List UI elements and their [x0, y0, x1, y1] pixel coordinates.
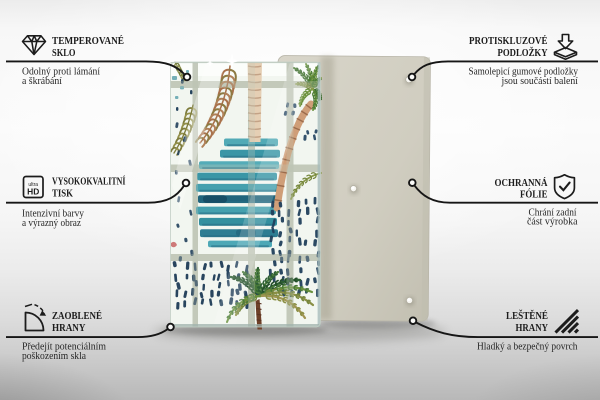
svg-text:OCHRANNÁ: OCHRANNÁ	[495, 177, 548, 189]
svg-text:HRANY: HRANY	[52, 322, 86, 334]
svg-text:TISK: TISK	[52, 188, 73, 200]
svg-text:VYSOKOKVALITNÍ: VYSOKOKVALITNÍ	[52, 176, 126, 188]
svg-text:PODLOŽKY: PODLOŽKY	[498, 47, 548, 59]
svg-text:HD: HD	[27, 187, 39, 197]
svg-text:ZAOBLENÉ: ZAOBLENÉ	[52, 310, 102, 322]
svg-text:poškozením skla: poškozením skla	[22, 351, 86, 362]
svg-text:a škrábání: a škrábání	[22, 76, 62, 87]
svg-text:TEMPEROVANÉ: TEMPEROVANÉ	[52, 35, 124, 47]
svg-text:HRANY: HRANY	[516, 322, 549, 334]
svg-text:a výrazný obraz: a výrazný obraz	[22, 218, 81, 229]
svg-text:LEŠTĚNÉ: LEŠTĚNÉ	[506, 309, 548, 322]
svg-text:FÓLIE: FÓLIE	[520, 189, 548, 201]
svg-text:Hladký a bezpečný povrch: Hladký a bezpečný povrch	[477, 342, 578, 353]
svg-text:PROTISKLUZOVÉ: PROTISKLUZOVÉ	[469, 35, 548, 47]
svg-text:část výrobka: část výrobka	[527, 217, 578, 228]
svg-text:SKLO: SKLO	[52, 47, 76, 59]
svg-text:jsou součástí balení: jsou součástí balení	[501, 76, 578, 87]
